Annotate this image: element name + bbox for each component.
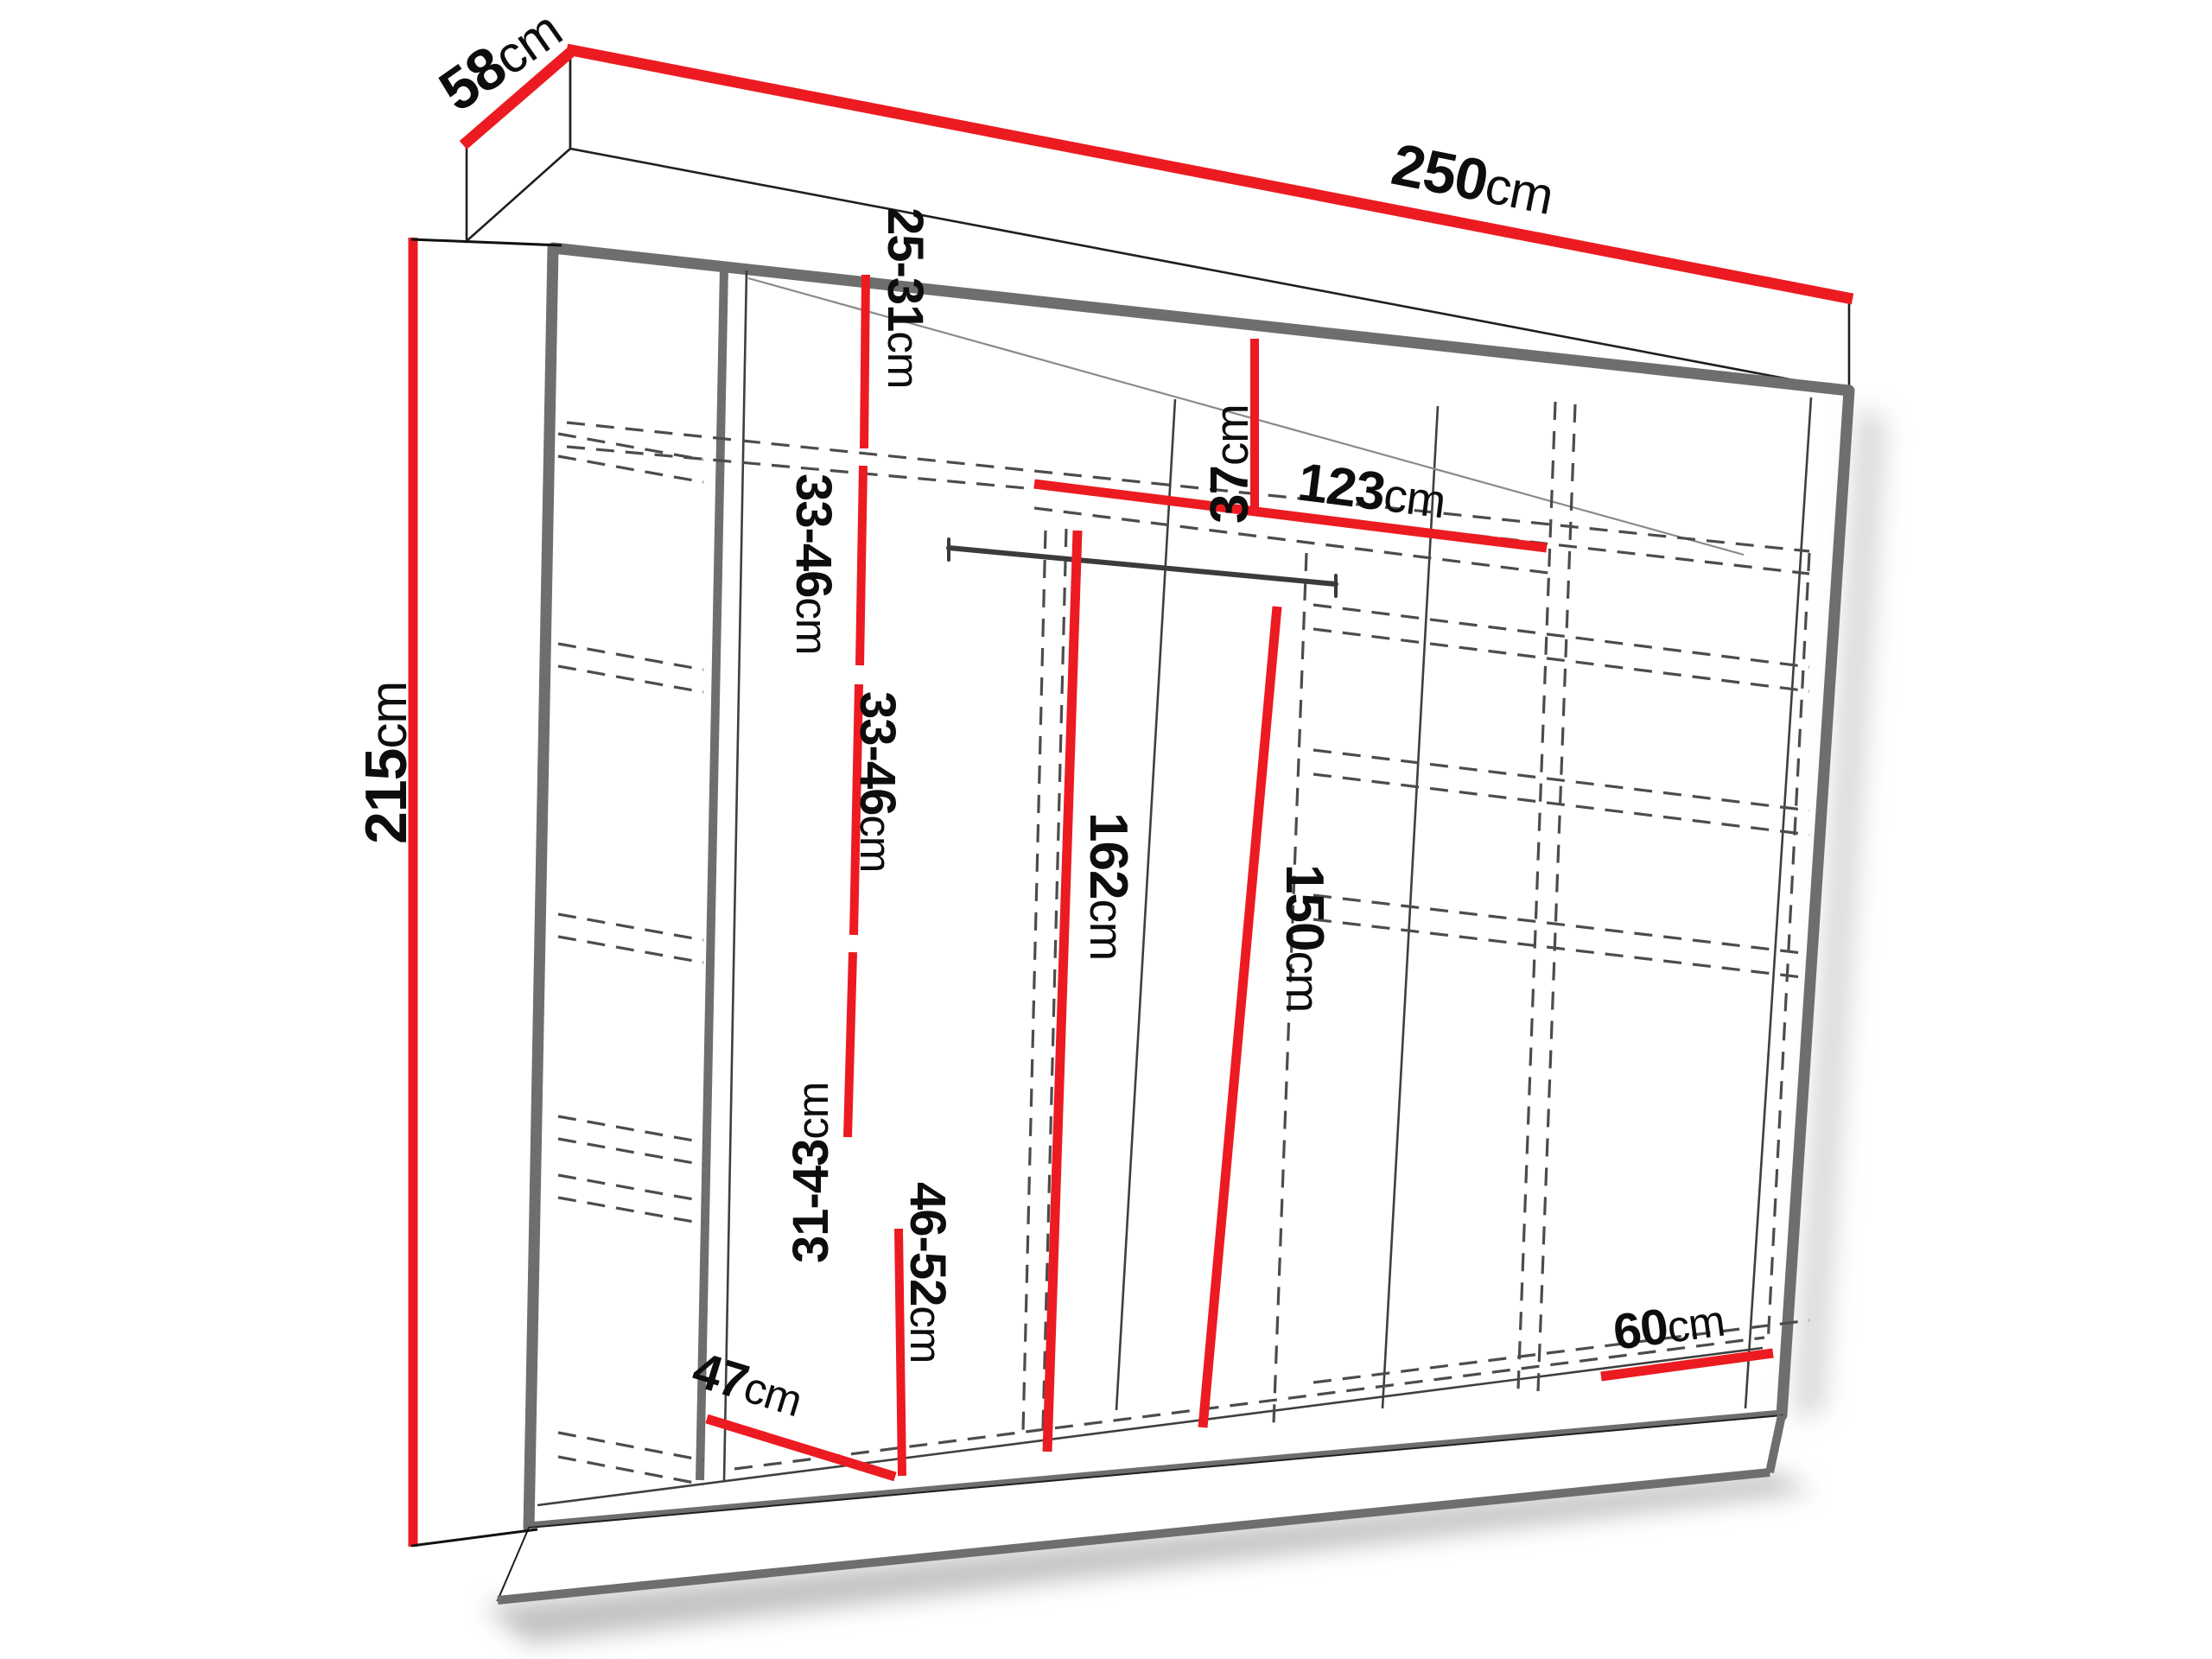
dim-height-label: 215cm <box>353 682 419 844</box>
dim-gap-31-43-line <box>848 952 853 1137</box>
divider-left-front-edge <box>700 268 724 1480</box>
hanging-rod <box>949 539 1336 596</box>
crown-front-face <box>570 50 1849 391</box>
dim-gap-33-46b-label: 33-46cm <box>849 691 906 872</box>
rod-bar <box>949 548 1336 584</box>
dim-hang-right-line <box>1203 607 1277 1427</box>
left-shelves-dashed <box>558 434 703 1484</box>
dim-top-shelf-label: 37cm <box>1200 404 1260 524</box>
dim-gap-33-46a-label: 33-46cm <box>785 474 842 654</box>
crown <box>467 50 1849 391</box>
dim-depth-right-label: 60cm <box>1610 1291 1727 1361</box>
dim-gap-25-31-label: 25-31cm <box>877 207 933 388</box>
dim-shelf-width-line <box>1034 484 1547 548</box>
dim-gap-25-31-line <box>864 275 866 448</box>
ceiling-dashed <box>567 423 1809 574</box>
dim-gap-33-46a-line <box>860 466 863 665</box>
dim-gap-31-43-label: 31-43cm <box>783 1083 839 1263</box>
divider-left-inner-edge <box>724 270 747 1481</box>
wardrobe-diagram: 250cm 58cm 215cm 25-31cm 33-46cm 33-46cm… <box>0 0 2212 1659</box>
dim-hang-left-label: 162cm <box>1078 812 1138 960</box>
dim-hang-left-line <box>1047 531 1077 1452</box>
dim-gap-46-52-label: 46-52cm <box>899 1182 956 1363</box>
dim-hang-right-label: 150cm <box>1274 864 1334 1012</box>
